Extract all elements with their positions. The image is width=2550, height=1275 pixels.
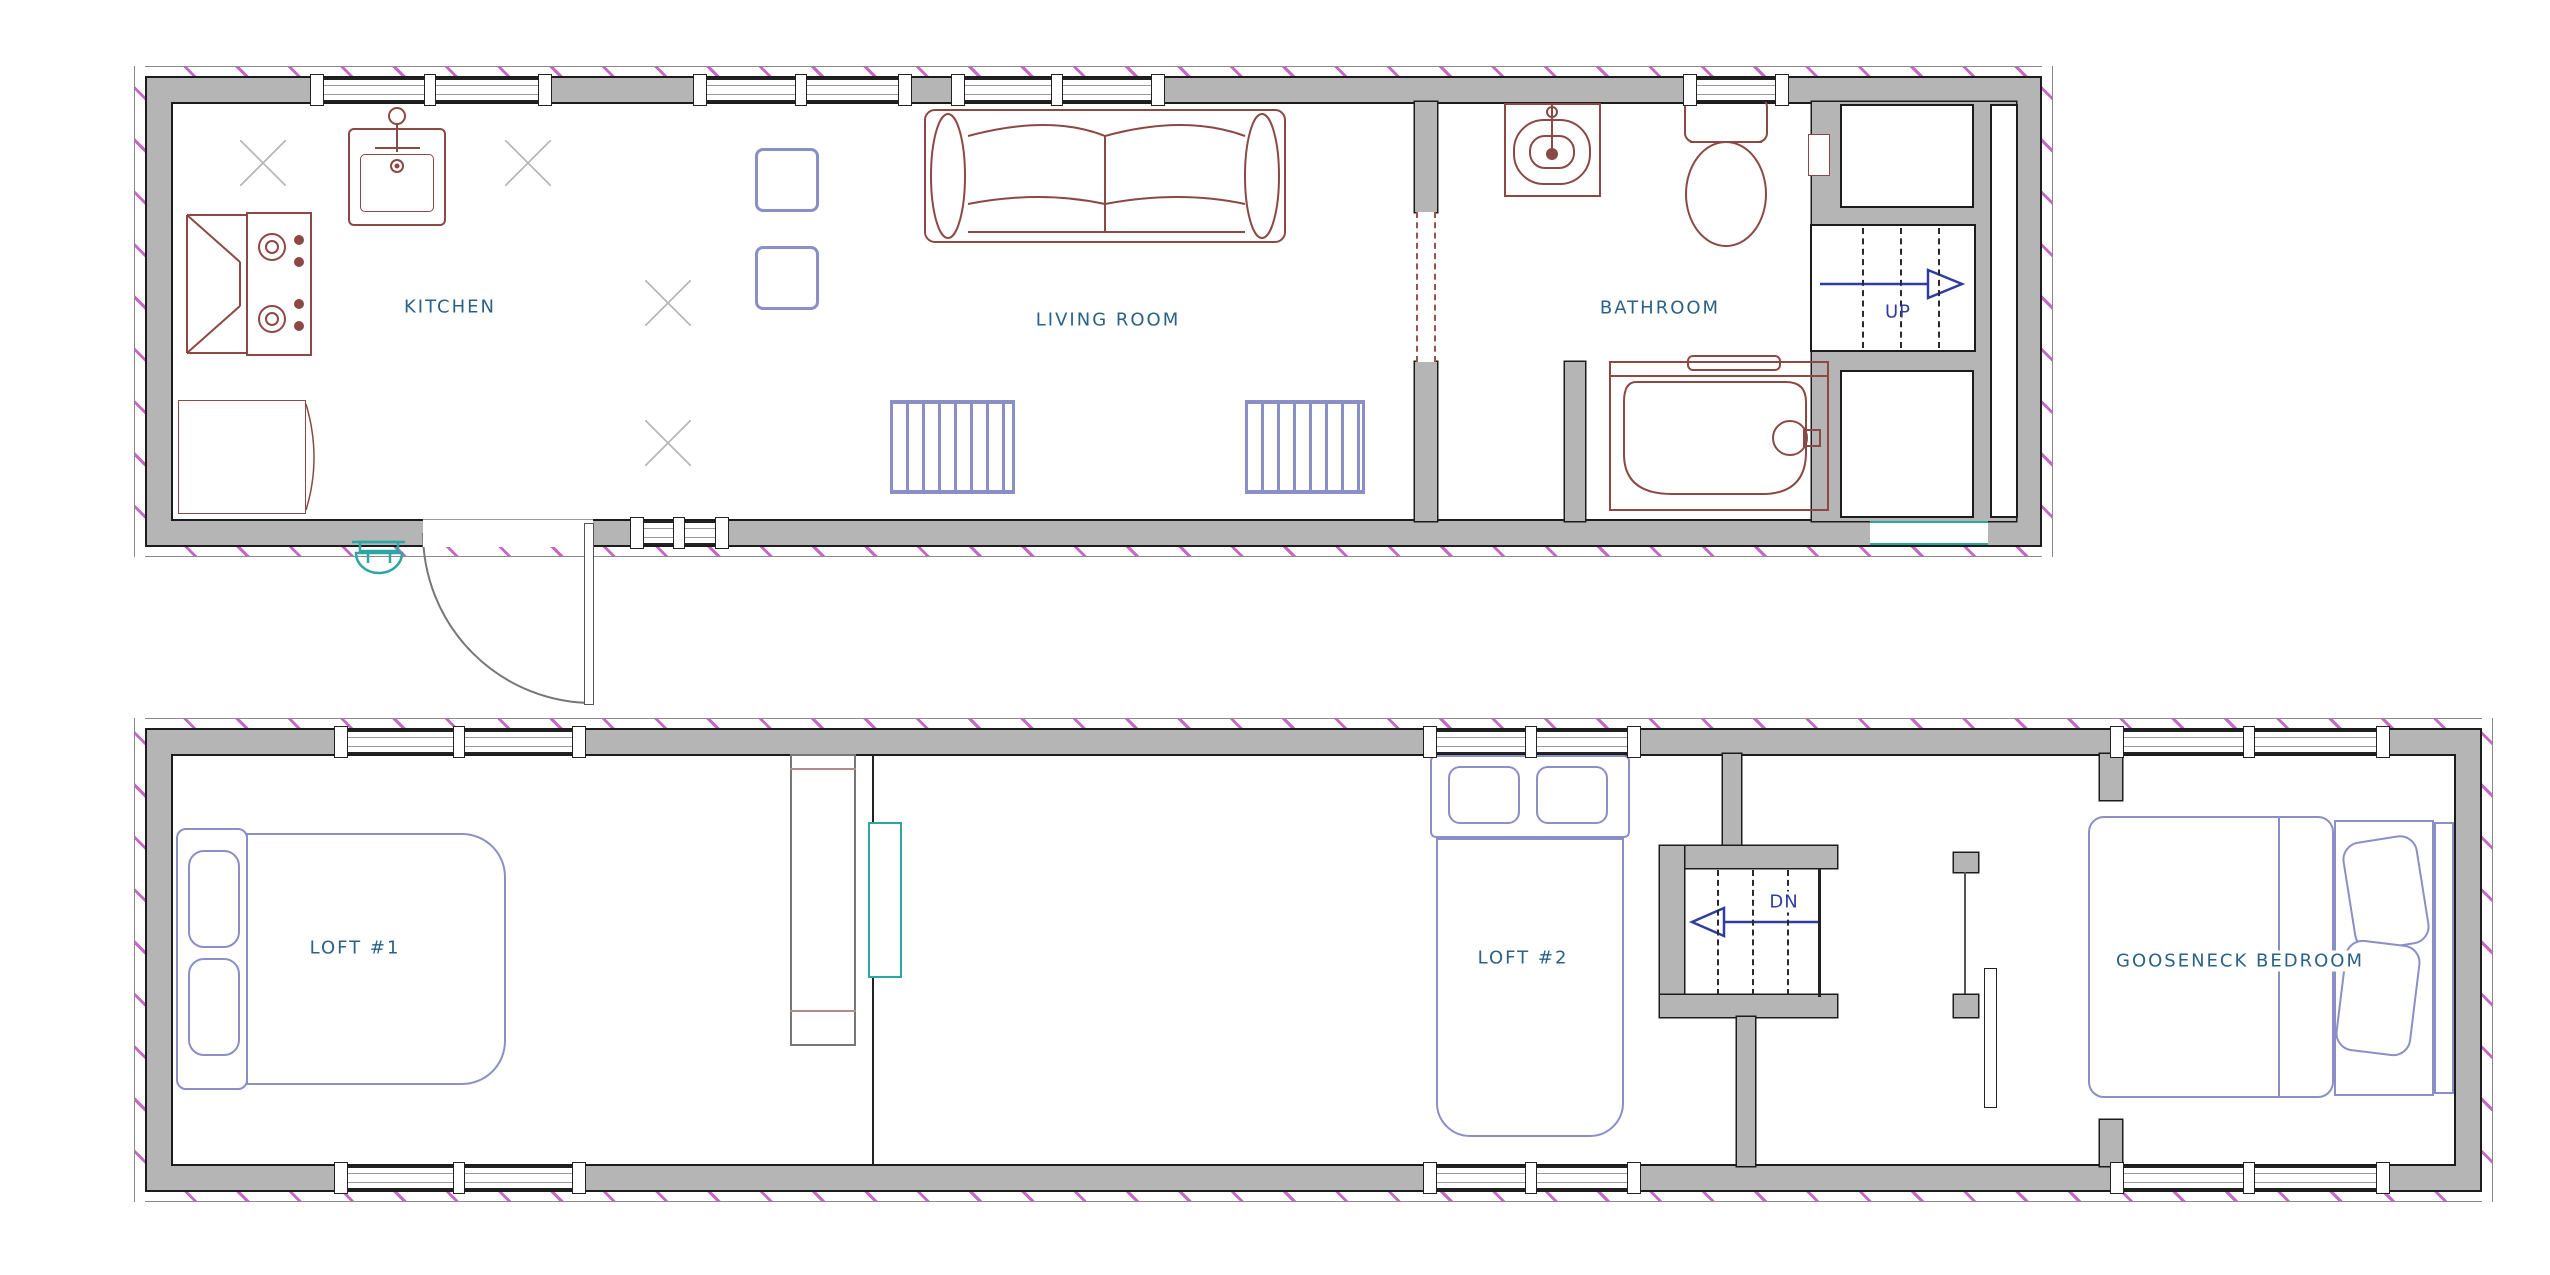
- window-post: [1683, 74, 1697, 106]
- bathroom-label: BATHROOM: [1600, 298, 1720, 319]
- window-post: [2110, 726, 2124, 758]
- loft-ladder-1: [890, 400, 1015, 494]
- window-post: [334, 726, 348, 758]
- window-post: [453, 1162, 465, 1194]
- counter-x-mark: [645, 420, 691, 466]
- window-post: [2243, 1162, 2255, 1194]
- entry-door-leaf: [584, 523, 594, 705]
- stairwell-wall-below: [1737, 1017, 1755, 1166]
- closet-upper: [1842, 106, 1972, 206]
- counter-x-mark: [240, 140, 286, 186]
- gooseneck-label: GOOSENECK BEDROOM: [2112, 951, 2368, 972]
- bar-stool: [755, 148, 819, 212]
- stairs-down-label: DN: [1766, 892, 1801, 913]
- entry-door-opening: [423, 519, 593, 547]
- window-post: [951, 74, 965, 106]
- window-post: [1627, 726, 1641, 758]
- window-post: [1627, 1162, 1641, 1194]
- window-post: [1423, 1162, 1437, 1194]
- window-post: [1151, 74, 1165, 106]
- loft2-pillow: [1536, 766, 1608, 824]
- loft2-pillow: [1448, 766, 1520, 824]
- window-post: [898, 74, 912, 106]
- living-bath-opening: [1416, 212, 1436, 362]
- window-post: [538, 74, 552, 106]
- window-post: [1051, 74, 1063, 106]
- bar-stool: [755, 246, 819, 310]
- floorplan-canvas: KITCHEN LIVING ROOM BATHROOM UP: [0, 0, 2550, 1275]
- main-hatch-left: [134, 66, 145, 557]
- rear-door-threshold: [1870, 521, 1988, 545]
- tub-alcove-wall: [1565, 362, 1585, 521]
- loft-wardrobe: [790, 754, 856, 1046]
- loft-ladder-2: [1245, 400, 1365, 494]
- main-hatch-right: [2042, 66, 2053, 557]
- window-post: [693, 74, 707, 106]
- window-post: [2110, 1162, 2124, 1194]
- living-bath-wall-upper: [1415, 102, 1437, 212]
- closet-lower: [1842, 372, 1972, 516]
- window-post: [310, 74, 324, 106]
- main-hatch-bottom: [145, 546, 2042, 557]
- loft-wardrobe-shelf-line: [790, 1010, 856, 1012]
- window-post: [334, 1162, 348, 1194]
- stairwell-wall-above: [1723, 754, 1741, 848]
- window-post: [1525, 1162, 1537, 1194]
- window-post: [572, 1162, 586, 1194]
- loft1-pillow: [188, 850, 240, 948]
- refrigerator: [178, 400, 306, 514]
- counter-x-mark: [505, 140, 551, 186]
- loft-hatch-bottom: [145, 1191, 2482, 1202]
- shaft-wall-cap: [1954, 995, 1978, 1017]
- window-post: [2376, 726, 2390, 758]
- stair-tread: [1862, 228, 1864, 348]
- loft2-bed-mattress: [1436, 838, 1624, 1137]
- stair-tread: [1752, 870, 1754, 995]
- window-post: [630, 517, 644, 549]
- window-post: [2376, 1162, 2390, 1194]
- window-post: [2243, 726, 2255, 758]
- loft1-bed-mattress: [246, 833, 506, 1085]
- loft-teal-shelf: [868, 822, 902, 978]
- kitchen-sink-basin: [360, 154, 434, 212]
- kitchen-label: KITCHEN: [404, 297, 496, 318]
- stairwell-wall-bottom: [1660, 995, 1837, 1017]
- window-post: [715, 517, 729, 549]
- stairs-up-label: UP: [1885, 302, 1911, 323]
- shaft-edge-line: [1964, 872, 1966, 995]
- window-post: [572, 726, 586, 758]
- loft-wardrobe-shelf-line: [790, 768, 856, 770]
- bathroom-window: [1690, 78, 1782, 102]
- shaft-wall-cap: [1954, 853, 1978, 872]
- wall-chase: [1992, 106, 2016, 516]
- gooseneck-wall-stub-top: [2100, 754, 2122, 800]
- window-post: [1423, 726, 1437, 758]
- living-room-label: LIVING ROOM: [1036, 310, 1180, 331]
- toilet-paper-holder: [1808, 134, 1830, 176]
- entry-door-swing-arc: [423, 533, 593, 703]
- loft-hatch-top: [145, 718, 2482, 729]
- stair-tread: [1900, 228, 1902, 348]
- window-post: [673, 517, 685, 549]
- stairwell-wall-top: [1660, 846, 1837, 868]
- stairwell-open-edge: [1818, 868, 1821, 997]
- window-post: [1775, 74, 1789, 106]
- living-bath-wall-lower: [1415, 362, 1437, 521]
- stair-tread: [1717, 870, 1719, 995]
- stair-tread: [1787, 870, 1789, 995]
- window-post: [424, 74, 436, 106]
- loft-hatch-left: [134, 718, 145, 1202]
- counter-x-mark: [645, 280, 691, 326]
- loft1-pillow: [188, 958, 240, 1056]
- loft-railing: [1984, 968, 1997, 1108]
- loft-hatch-right: [2482, 718, 2493, 1202]
- window-post: [795, 74, 807, 106]
- window-post: [1525, 726, 1537, 758]
- gooseneck-bed-headboard: [2434, 822, 2454, 1094]
- gooseneck-wall-stub-bottom: [2100, 1120, 2122, 1166]
- window-post: [453, 726, 465, 758]
- stairwell-wall-left: [1660, 846, 1684, 1017]
- stair-tread: [1938, 228, 1940, 348]
- loft1-label: LOFT #1: [310, 938, 401, 959]
- stairwell-up: [1812, 226, 1974, 350]
- loft2-label: LOFT #2: [1478, 948, 1569, 969]
